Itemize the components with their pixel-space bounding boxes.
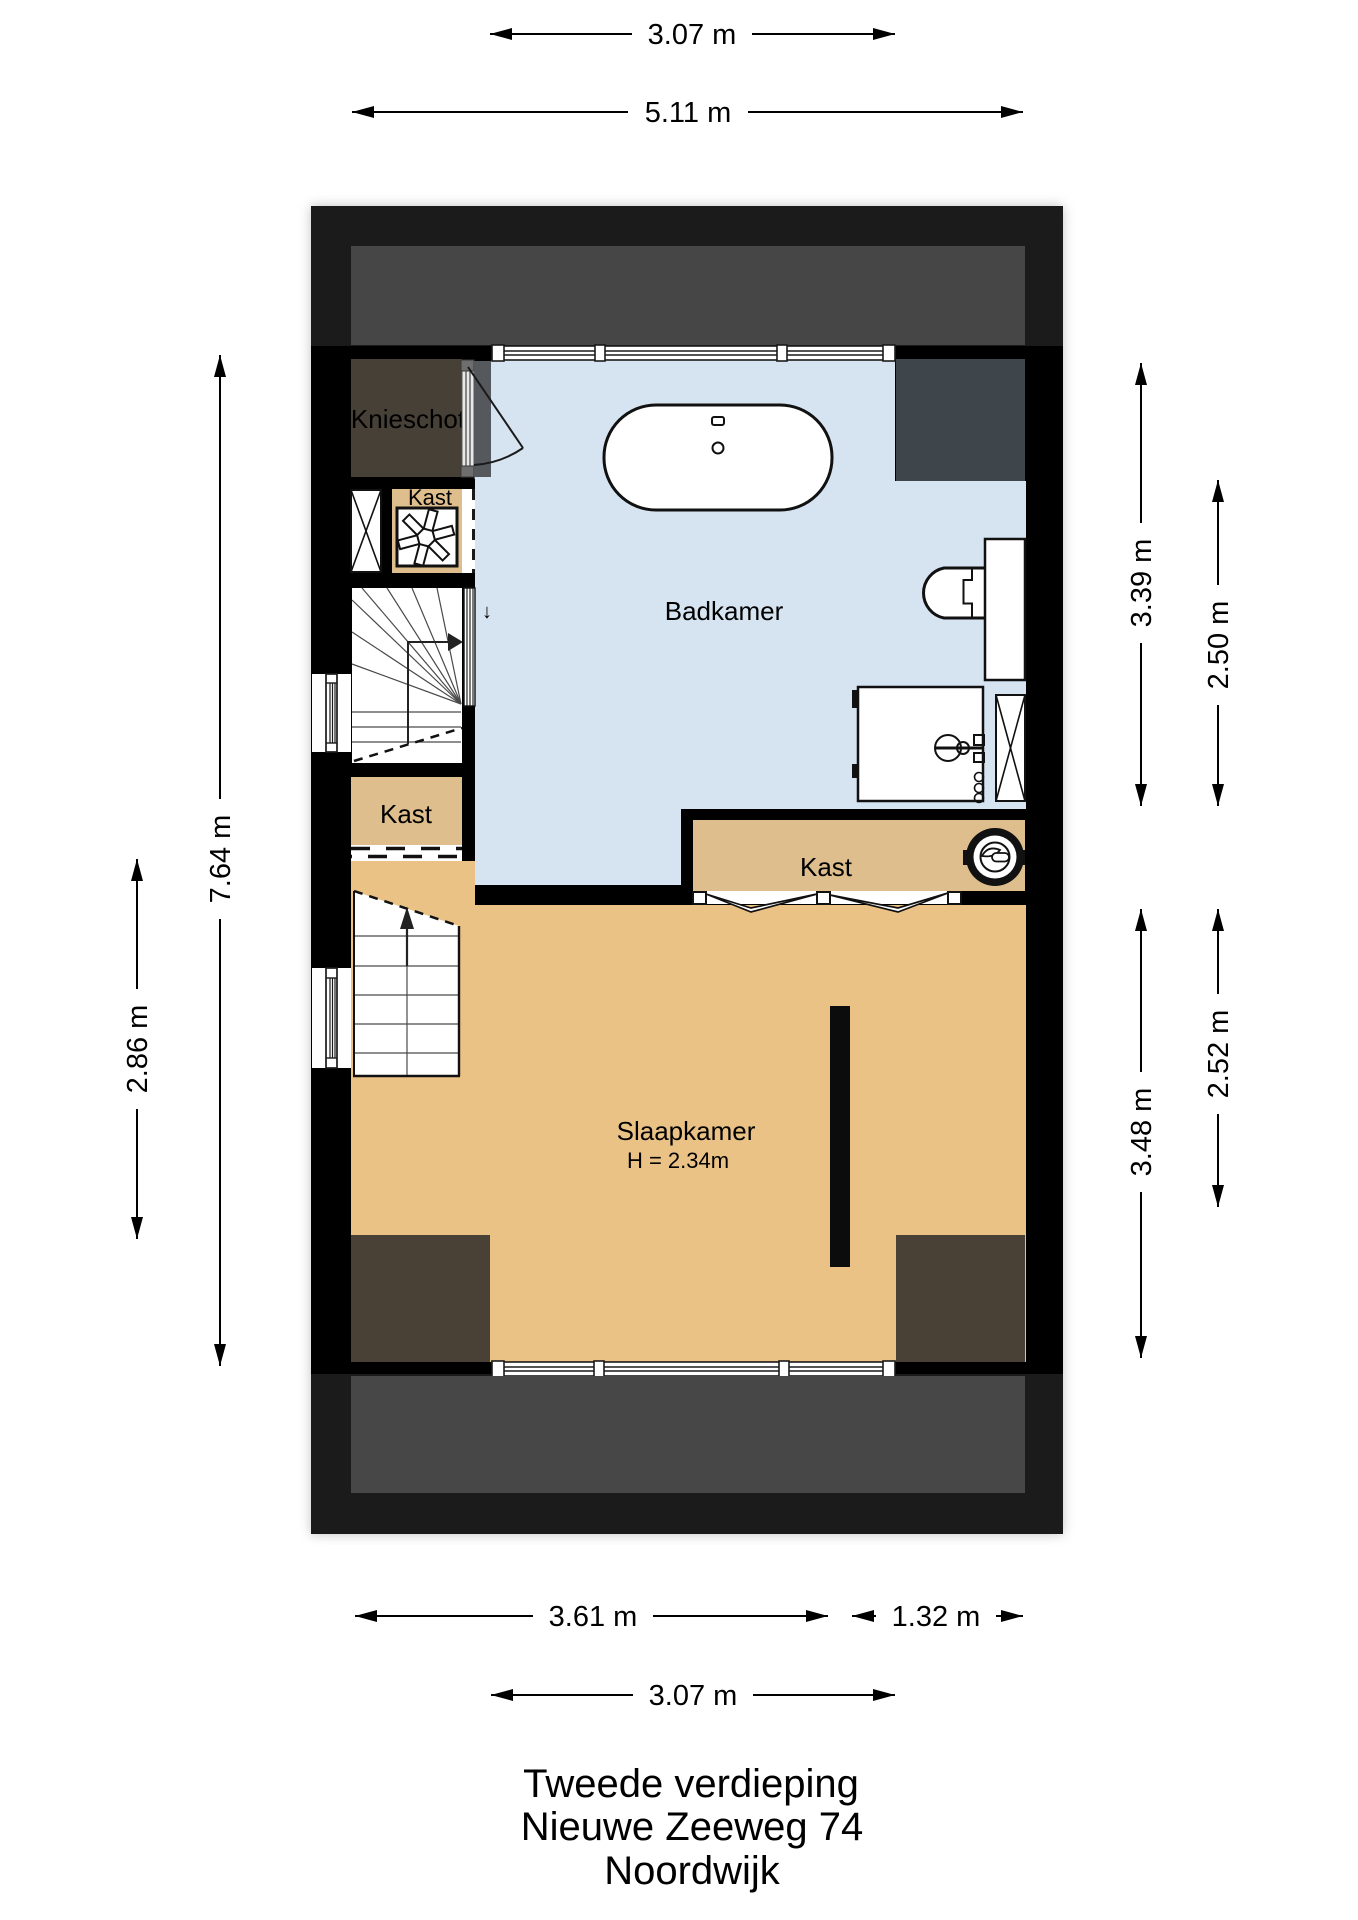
svg-text:Knieschot: Knieschot (351, 404, 466, 434)
svg-text:Kast: Kast (800, 852, 853, 882)
svg-text:2.50 m: 2.50 m (1203, 601, 1235, 690)
svg-text:7.64 m: 7.64 m (205, 815, 237, 904)
svg-text:3.07 m: 3.07 m (649, 1680, 738, 1712)
svg-text:3.48 m: 3.48 m (1126, 1088, 1158, 1177)
svg-text:Badkamer: Badkamer (665, 596, 784, 626)
svg-text:Noordwijk: Noordwijk (604, 1849, 781, 1893)
svg-text:Kast: Kast (380, 799, 433, 829)
svg-text:2.86 m: 2.86 m (122, 1005, 154, 1094)
svg-text:1.32 m: 1.32 m (892, 1601, 981, 1633)
svg-text:H = 2.34m: H = 2.34m (627, 1148, 729, 1173)
svg-text:Slaapkamer: Slaapkamer (617, 1116, 756, 1146)
svg-text:Tweede verdieping: Tweede verdieping (523, 1762, 859, 1806)
svg-text:Nieuwe Zeeweg 74: Nieuwe Zeeweg 74 (521, 1805, 863, 1849)
svg-text:3.61 m: 3.61 m (549, 1601, 638, 1633)
svg-text:2.52 m: 2.52 m (1203, 1010, 1235, 1099)
svg-text:3.39 m: 3.39 m (1126, 539, 1158, 628)
svg-text:5.11 m: 5.11 m (645, 97, 732, 129)
svg-text:3.07 m: 3.07 m (648, 19, 737, 51)
svg-text:↓: ↓ (482, 601, 492, 623)
svg-text:Kast: Kast (408, 485, 452, 510)
